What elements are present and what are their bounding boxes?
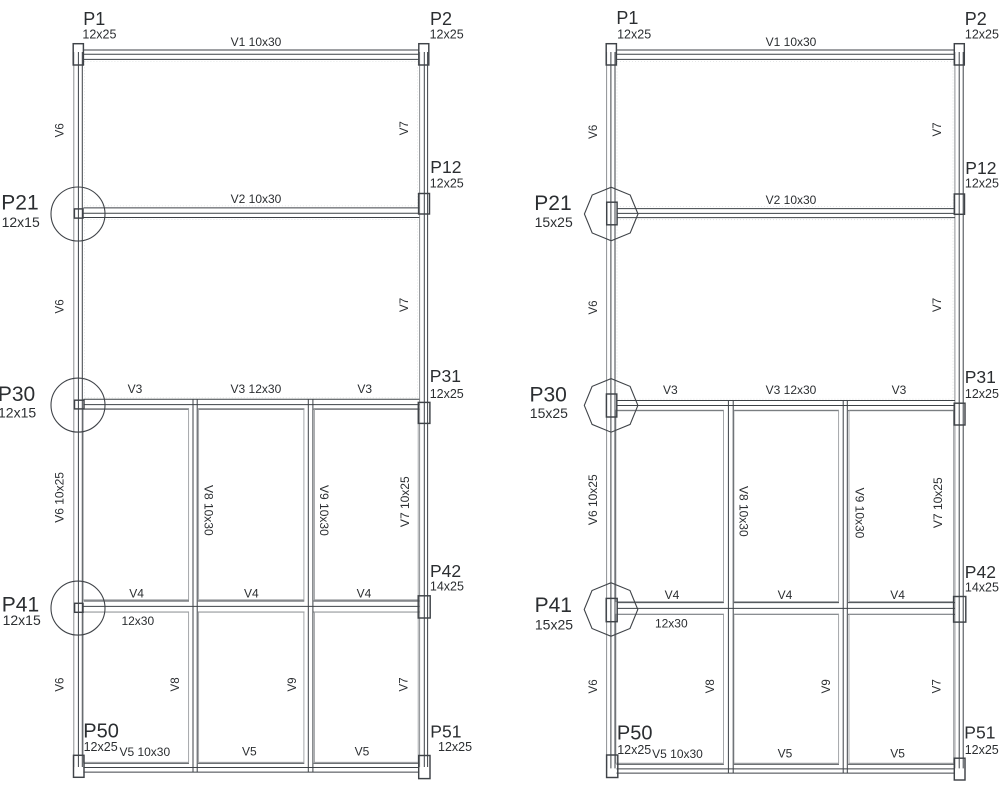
svg-text:12x25: 12x25 xyxy=(965,743,999,757)
svg-text:V3 12x30: V3 12x30 xyxy=(231,382,282,396)
svg-text:V5 10x30: V5 10x30 xyxy=(119,745,170,759)
svg-text:P42: P42 xyxy=(430,561,461,581)
svg-text:V6 10x25: V6 10x25 xyxy=(586,474,600,525)
svg-text:P30: P30 xyxy=(530,383,567,406)
svg-text:V6: V6 xyxy=(55,678,67,692)
svg-text:V8 10x30: V8 10x30 xyxy=(737,486,751,537)
svg-text:V6: V6 xyxy=(588,300,600,314)
svg-text:P41: P41 xyxy=(535,594,572,617)
svg-text:14x25: 14x25 xyxy=(430,580,464,594)
svg-text:V3: V3 xyxy=(128,382,143,396)
svg-text:P50: P50 xyxy=(617,722,653,744)
svg-text:V7: V7 xyxy=(399,121,411,135)
svg-text:V8: V8 xyxy=(705,679,717,693)
svg-text:V9 10x30: V9 10x30 xyxy=(853,488,867,539)
svg-text:P42: P42 xyxy=(965,562,996,582)
svg-text:V6: V6 xyxy=(55,299,67,313)
svg-text:P21: P21 xyxy=(534,192,571,215)
svg-text:12x25: 12x25 xyxy=(82,28,116,42)
svg-text:12x25: 12x25 xyxy=(430,387,464,401)
svg-text:P31: P31 xyxy=(965,367,996,387)
svg-text:15x25: 15x25 xyxy=(535,214,573,230)
svg-text:V3: V3 xyxy=(357,382,372,396)
svg-text:12x25: 12x25 xyxy=(430,177,464,191)
svg-text:V7: V7 xyxy=(932,122,944,136)
svg-text:V9: V9 xyxy=(821,679,833,693)
svg-text:V7 10x25: V7 10x25 xyxy=(398,476,412,527)
svg-text:12x30: 12x30 xyxy=(655,617,688,631)
svg-text:V5: V5 xyxy=(355,745,370,759)
svg-text:12x15: 12x15 xyxy=(2,214,40,230)
svg-text:V4: V4 xyxy=(357,587,372,601)
svg-text:P21: P21 xyxy=(1,192,38,215)
svg-text:V4: V4 xyxy=(890,588,905,602)
svg-text:P1: P1 xyxy=(83,9,105,29)
svg-text:V7: V7 xyxy=(399,677,411,691)
svg-text:V5: V5 xyxy=(890,746,905,760)
svg-text:12x25: 12x25 xyxy=(617,743,651,757)
svg-text:V5: V5 xyxy=(778,746,793,760)
svg-text:V6: V6 xyxy=(588,679,600,693)
svg-text:V7: V7 xyxy=(399,298,411,312)
svg-text:V3: V3 xyxy=(892,383,907,397)
svg-text:V7: V7 xyxy=(932,679,944,693)
svg-text:V9: V9 xyxy=(287,677,299,691)
svg-text:V2 10x30: V2 10x30 xyxy=(766,193,817,207)
svg-text:V5 10x30: V5 10x30 xyxy=(652,747,703,761)
svg-text:V7: V7 xyxy=(932,298,944,312)
svg-text:12x25: 12x25 xyxy=(965,387,999,401)
svg-text:V4: V4 xyxy=(778,588,793,602)
svg-text:15x25: 15x25 xyxy=(530,405,568,421)
svg-text:V2 10x30: V2 10x30 xyxy=(231,192,282,206)
svg-text:V6: V6 xyxy=(55,123,67,137)
svg-text:12x30: 12x30 xyxy=(121,614,154,628)
svg-text:P51: P51 xyxy=(430,721,461,741)
svg-text:12x25: 12x25 xyxy=(965,177,999,191)
svg-text:P51: P51 xyxy=(964,722,995,742)
svg-text:V4: V4 xyxy=(665,588,680,602)
svg-text:12x25: 12x25 xyxy=(617,27,651,41)
svg-text:V5: V5 xyxy=(242,745,257,759)
svg-text:12x15: 12x15 xyxy=(3,612,41,628)
svg-text:V6 10x25: V6 10x25 xyxy=(52,472,66,523)
svg-text:15x25: 15x25 xyxy=(535,617,573,633)
svg-text:P1: P1 xyxy=(616,8,638,28)
svg-text:V4: V4 xyxy=(244,587,259,601)
svg-text:V1 10x30: V1 10x30 xyxy=(231,35,282,49)
svg-text:12x25: 12x25 xyxy=(84,740,118,754)
svg-text:V3: V3 xyxy=(663,383,678,397)
svg-text:12x25: 12x25 xyxy=(965,27,999,41)
svg-text:P2: P2 xyxy=(430,9,452,29)
svg-text:V9 10x30: V9 10x30 xyxy=(317,485,331,536)
svg-text:P12: P12 xyxy=(430,157,461,177)
svg-text:P2: P2 xyxy=(965,9,987,29)
svg-text:V6: V6 xyxy=(588,125,600,139)
svg-text:V4: V4 xyxy=(129,587,144,601)
svg-text:12x25: 12x25 xyxy=(438,740,472,754)
svg-text:V1 10x30: V1 10x30 xyxy=(766,35,817,49)
svg-text:V8 10x30: V8 10x30 xyxy=(201,485,215,536)
svg-text:12x25: 12x25 xyxy=(430,28,464,42)
svg-text:14x25: 14x25 xyxy=(965,581,999,595)
svg-text:P31: P31 xyxy=(430,366,461,386)
svg-text:P30: P30 xyxy=(0,383,35,406)
svg-text:P50: P50 xyxy=(83,721,119,743)
svg-text:V3 12x30: V3 12x30 xyxy=(766,383,817,397)
svg-text:12x15: 12x15 xyxy=(0,405,36,421)
svg-text:P12: P12 xyxy=(965,158,996,178)
svg-text:V8: V8 xyxy=(170,677,182,691)
svg-text:V7 10x25: V7 10x25 xyxy=(931,477,945,528)
